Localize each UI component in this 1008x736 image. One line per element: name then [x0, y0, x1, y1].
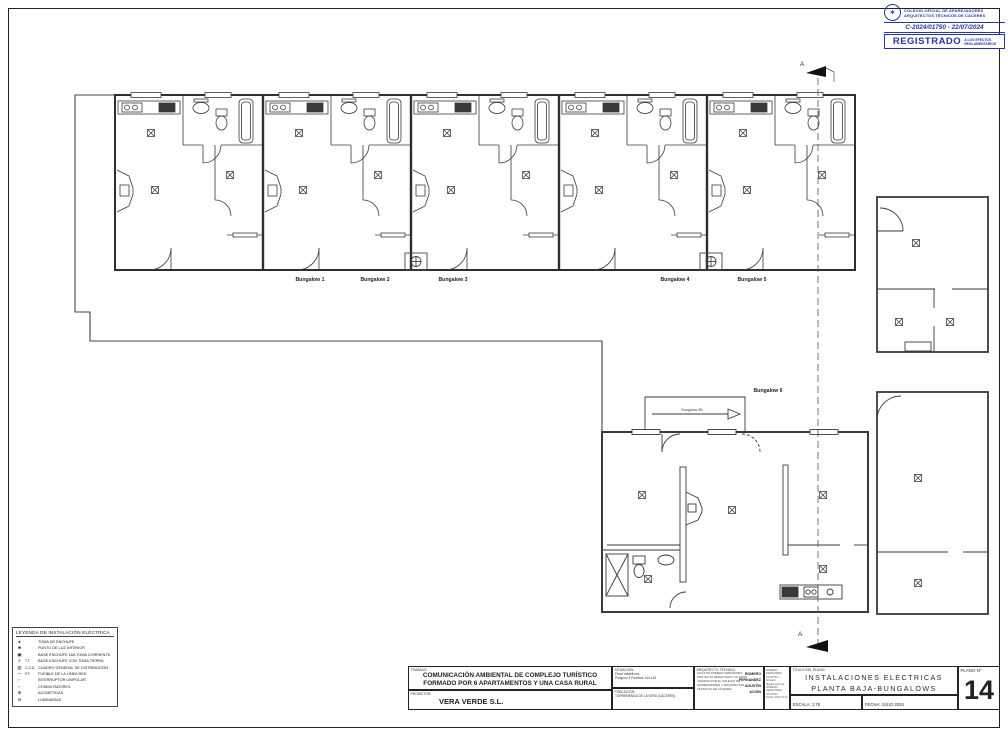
escala-value: 1:75	[812, 702, 820, 707]
poblacion-label: POBLACIÓN:	[615, 690, 636, 694]
registered-word: REGISTRADO	[893, 36, 961, 47]
digital-signature-box: ROMERO FERNANDEZ AGUSTIN — Firmado digit…	[764, 666, 790, 710]
electrical-legend: LEYENDA DE INSTALACIÓN ELÉCTRICA ●TOMA D…	[12, 627, 118, 707]
plan-title-line2: PLANTA BAJA-BUNGALOWS	[791, 684, 957, 693]
section-arrow-bottom	[806, 640, 828, 652]
registration-number: C-2024/01750 - 22/07/2024	[884, 22, 1005, 33]
situacion-label: SITUACIÓN:	[615, 668, 634, 672]
college-name-line1: COLEGIO OFICIAL DE APAREJADORES	[904, 8, 985, 13]
titleblock-arquitecto: ARQUITECTO TÉCNICO: AGUSTÍN ROMERO FERNÁ…	[694, 666, 764, 710]
legend-item: ⊖LUMINARIAS	[16, 697, 114, 703]
legend-title: LEYENDA DE INSTALACIÓN ELÉCTRICA	[16, 630, 114, 637]
plan-title-line1: INSTALACIONES ELECTRICAS	[791, 673, 957, 682]
lower-right-annex	[877, 392, 988, 614]
label-bungalow-2: Bungalow 2	[360, 277, 389, 283]
poblacion-value: TORREMENGA DE LA VERA (CÁCERES)	[615, 694, 693, 698]
promotor-name: VERA VERDE S.L.	[439, 697, 611, 706]
college-name-line2: ARQUITECTOS TÉCNICOS DE CÁCERES	[904, 13, 985, 18]
legend-symbol: ⊖	[16, 697, 23, 703]
label-bungalow-1: Bungalow 1	[295, 277, 324, 283]
titleblock-promotor: PROMOTOR: VERA VERDE S.L.	[408, 690, 612, 710]
label-bungalow-5: Bungalow 5	[737, 277, 766, 283]
trabajo-label: TRABAJO:	[411, 668, 428, 672]
titleblock-escala: ESCALA: 1:75	[790, 695, 862, 710]
college-logo-icon: ✶	[884, 4, 901, 21]
registration-stamp: ✶ COLEGIO OFICIAL DE APAREJADORES ARQUIT…	[884, 4, 1005, 49]
section-marker-bottom: A	[798, 631, 803, 638]
situacion-line2: Polígono 3 Parcelas 144-145	[615, 676, 693, 680]
bungalow6-entry	[645, 397, 745, 432]
titleblock-plano-numero: PLANO Nº 14	[958, 666, 1000, 710]
architect-signature-stamp: ROMERO FERNANDEZ AGUSTÍN ACIÓN	[739, 671, 761, 695]
promotor-label: PROMOTOR:	[411, 692, 432, 696]
registered-note2: REGLAMENTARIOS	[964, 42, 996, 46]
titleblock-situacion: SITUACIÓN: Finca Valdeflores Polígono 3 …	[612, 666, 694, 688]
upper-bungalow-building	[115, 93, 855, 271]
title-block: TRABAJO: COMUNICACIÓN AMBIENTAL DE COMPL…	[408, 666, 1000, 710]
registered-box: REGISTRADO A LOS EFECTOS REGLAMENTARIOS	[884, 34, 1005, 49]
section-marker-top: A	[800, 61, 805, 68]
label-bungalow-6: Bungalow 6	[753, 388, 782, 394]
bungalow-labels: Bungalow 1 Bungalow 2 Bungalow 3 Bungalo…	[295, 277, 782, 412]
titulo-label: TÍTULO DEL PLANO:	[793, 668, 826, 672]
trabajo-line2: FORMADO POR 6 APARTAMENTOS Y UNA CASA RU…	[409, 680, 611, 688]
floor-plan-drawing: A A Bungalow 1 Bungalow 2 Bungalow 3 Bun…	[0, 0, 1008, 736]
bungalow6-building	[602, 430, 868, 613]
titleblock-poblacion: POBLACIÓN: TORREMENGA DE LA VERA (CÁCERE…	[612, 688, 694, 710]
legend-label: LUMINARIAS	[38, 697, 61, 703]
label-bungalow-4: Bungalow 4	[660, 277, 689, 283]
trabajo-line1: COMUNICACIÓN AMBIENTAL DE COMPLEJO TURÍS…	[409, 672, 611, 680]
titleblock-fecha: FECHA: JULIO 2024	[862, 695, 958, 710]
fecha-label: FECHA:	[865, 702, 880, 707]
titleblock-trabajo: TRABAJO: COMUNICACIÓN AMBIENTAL DE COMPL…	[408, 666, 612, 690]
arquitecto-label: ARQUITECTO TÉCNICO:	[697, 668, 736, 672]
plano-label: PLANO Nº	[961, 668, 982, 673]
upper-right-annex	[877, 197, 988, 352]
escala-label: ESCALA:	[793, 702, 811, 707]
section-line-AA: A A	[798, 61, 834, 652]
titleblock-titulo-plano: TÍTULO DEL PLANO: INSTALACIONES ELECTRIC…	[790, 666, 958, 695]
plano-number: 14	[959, 675, 999, 705]
site-boundary-line	[75, 95, 602, 432]
fecha-value: JULIO 2024	[882, 702, 904, 707]
label-bungalow-3: Bungalow 3	[438, 277, 467, 283]
label-bungalow-6b-arrow: Bungalow 6B	[681, 408, 703, 412]
section-arrow-top	[806, 66, 826, 77]
